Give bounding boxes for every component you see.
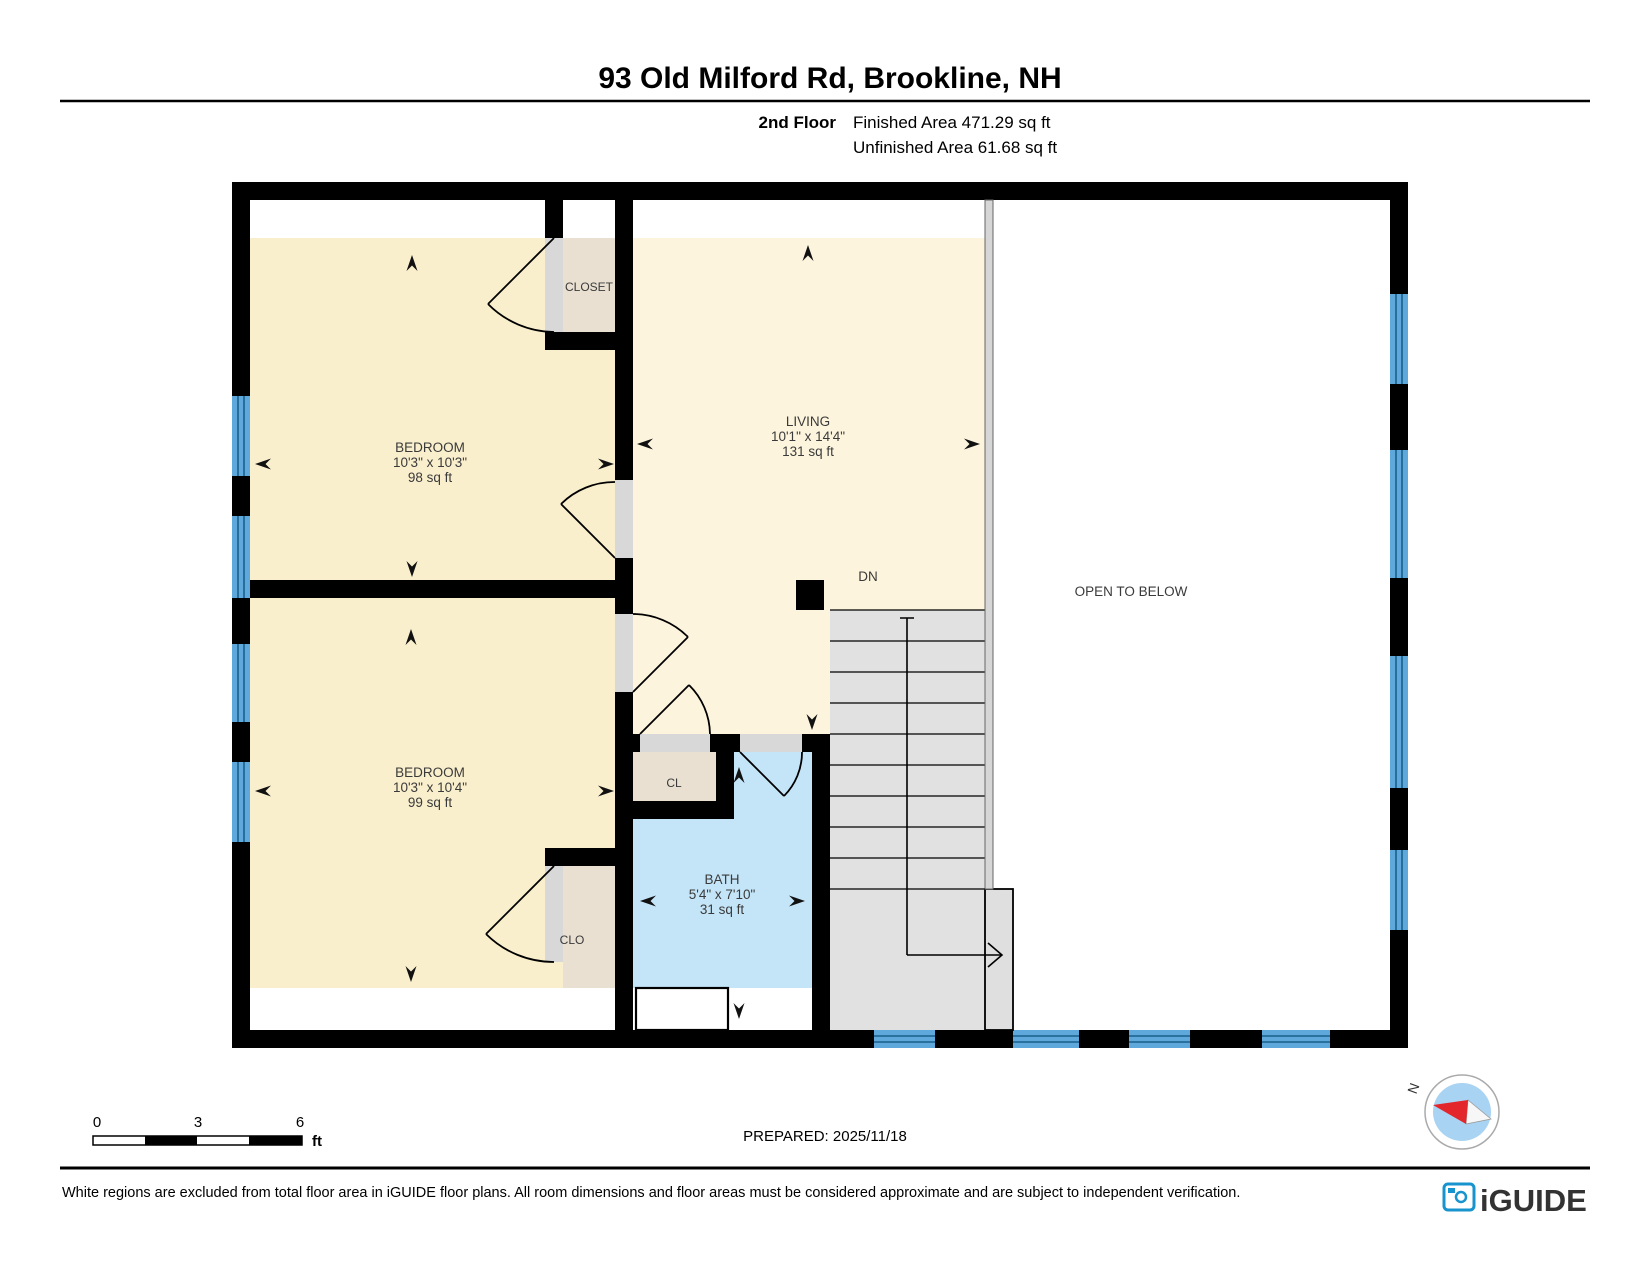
room-area: 131 sq ft bbox=[782, 444, 834, 459]
room-dims: 5'4" x 7'10" bbox=[689, 887, 756, 902]
closet-clo-floor bbox=[563, 866, 615, 988]
window bbox=[232, 516, 250, 598]
floorplan-page: 93 Old Milford Rd, Brookline, NH 2nd Flo… bbox=[0, 0, 1650, 1275]
hallway-floor bbox=[633, 610, 830, 734]
finished-area: Finished Area 471.29 sq ft bbox=[853, 113, 1051, 132]
cl-label: CL bbox=[666, 776, 682, 790]
window bbox=[1262, 1030, 1330, 1048]
brand-name: iGUIDE bbox=[1480, 1183, 1587, 1218]
excluded-region bbox=[636, 988, 728, 1030]
room-name: BEDROOM bbox=[395, 765, 465, 780]
window bbox=[1390, 450, 1408, 578]
scale-bar-segment bbox=[249, 1136, 302, 1145]
compass-icon: N bbox=[1404, 1075, 1499, 1149]
compass-north-label: N bbox=[1404, 1081, 1422, 1096]
iguide-logo: iGUIDE bbox=[1444, 1183, 1587, 1218]
scale-bar: 0 3 6 ft bbox=[93, 1114, 322, 1150]
unfinished-area: Unfinished Area 61.68 sq ft bbox=[853, 138, 1057, 157]
window bbox=[232, 396, 250, 476]
dn-label: DN bbox=[858, 569, 878, 584]
room-area: 31 sq ft bbox=[700, 902, 745, 917]
stair-landing-extension bbox=[985, 889, 1013, 1030]
room-name: BEDROOM bbox=[395, 440, 465, 455]
footer: White regions are excluded from total fl… bbox=[60, 1168, 1590, 1218]
window bbox=[874, 1030, 935, 1048]
room-dims: 10'1" x 14'4" bbox=[771, 429, 845, 444]
prepared-date: PREPARED: 2025/11/18 bbox=[743, 1128, 907, 1145]
iguide-camera-icon bbox=[1444, 1184, 1474, 1210]
clo-label: CLO bbox=[560, 933, 585, 947]
scale-tick: 3 bbox=[194, 1114, 202, 1131]
room-area: 99 sq ft bbox=[408, 795, 453, 810]
open-to-below-label: OPEN TO BELOW bbox=[1075, 584, 1188, 599]
window bbox=[232, 762, 250, 842]
scale-tick: 0 bbox=[93, 1114, 101, 1131]
page-title: 93 Old Milford Rd, Brookline, NH bbox=[598, 62, 1061, 95]
floorplan: BEDROOM 10'3" x 10'3" 98 sq ft LIVING 10… bbox=[232, 182, 1408, 1048]
window bbox=[1390, 294, 1408, 384]
floorplan-canvas: 93 Old Milford Rd, Brookline, NH 2nd Flo… bbox=[0, 0, 1650, 1275]
header: 93 Old Milford Rd, Brookline, NH 2nd Flo… bbox=[60, 62, 1590, 157]
stair-newel-wall bbox=[796, 580, 824, 610]
window bbox=[1390, 850, 1408, 930]
room-dims: 10'3" x 10'4" bbox=[393, 780, 467, 795]
disclaimer-text: White regions are excluded from total fl… bbox=[62, 1185, 1240, 1201]
floor-label: 2nd Floor bbox=[759, 113, 837, 132]
window bbox=[1013, 1030, 1079, 1048]
scale-bar-segment bbox=[145, 1136, 197, 1145]
railing bbox=[985, 200, 993, 889]
window bbox=[1390, 656, 1408, 788]
room-area: 98 sq ft bbox=[408, 470, 453, 485]
closet-label: CLOSET bbox=[565, 280, 614, 294]
room-dims: 10'3" x 10'3" bbox=[393, 455, 467, 470]
scale-tick: 6 bbox=[296, 1114, 304, 1131]
window bbox=[232, 644, 250, 722]
room-name: LIVING bbox=[786, 414, 830, 429]
window bbox=[1129, 1030, 1190, 1048]
room-name: BATH bbox=[704, 872, 739, 887]
scale-unit: ft bbox=[312, 1133, 322, 1150]
